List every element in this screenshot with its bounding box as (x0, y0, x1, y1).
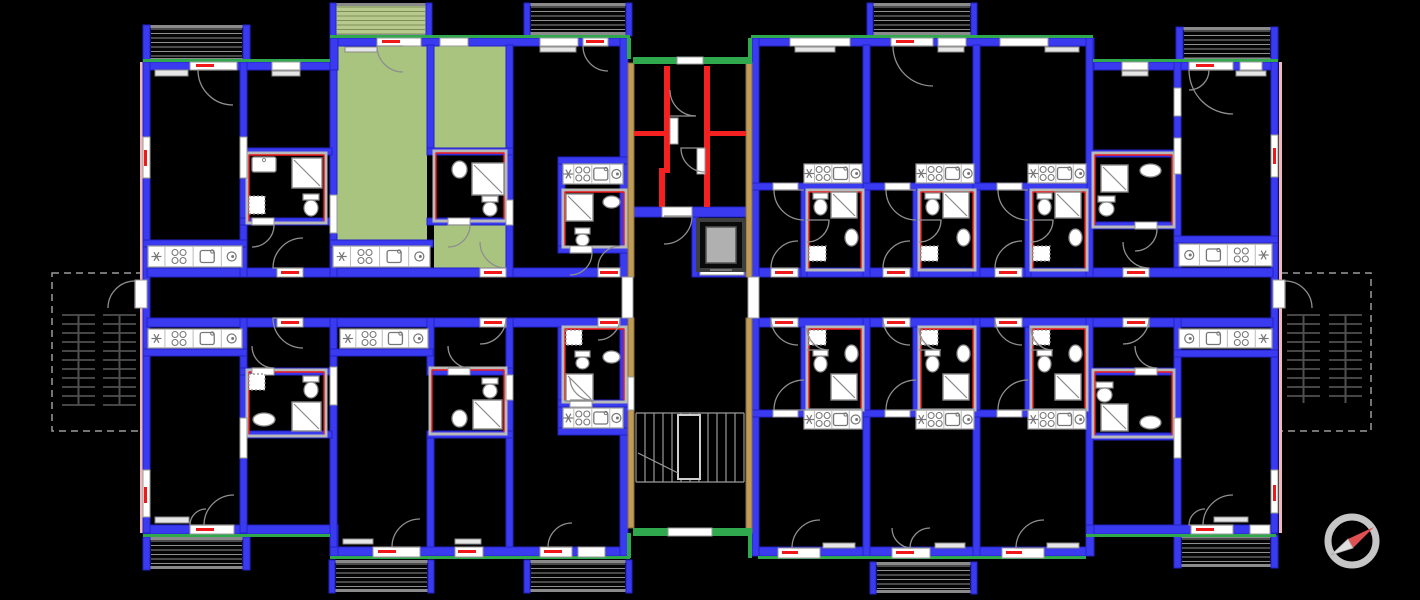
wall-tan (628, 318, 634, 528)
radiator-tick (999, 271, 1017, 274)
window-or-door-opening (448, 368, 470, 375)
window-sill (155, 70, 188, 76)
toilet-tank (925, 193, 940, 199)
wall-blue (626, 560, 632, 593)
washbasin (1069, 345, 1082, 362)
kitchen-counter (333, 246, 430, 267)
boiler-icon-dot (855, 172, 858, 175)
boiler-icon-dot (418, 337, 421, 340)
wall-red (634, 131, 664, 136)
window-sill (1122, 71, 1148, 76)
washbasin (1069, 229, 1082, 246)
window-sill (272, 71, 300, 76)
facade-line (748, 533, 752, 558)
boiler-icon-dot (1189, 337, 1192, 340)
kitchen-sink-icon (1058, 168, 1072, 180)
balcony (530, 560, 626, 592)
radiator-tick (281, 271, 299, 274)
toilet-tank (575, 228, 590, 234)
wall-blue (1271, 535, 1278, 568)
window-or-door-opening (540, 38, 578, 46)
radiator-tick (1196, 64, 1214, 67)
toilet-tank (1096, 382, 1113, 388)
window-or-door-opening (773, 410, 798, 417)
window-or-door-opening (1250, 525, 1270, 534)
washing-machine (1033, 246, 1050, 261)
toilet-bowl (483, 384, 497, 398)
stair-void (678, 415, 700, 479)
wall-blue (867, 3, 873, 36)
radiator-tick (1127, 271, 1145, 274)
radiator-tick (586, 40, 604, 43)
wall-blue (329, 560, 335, 593)
window-or-door-opening (578, 547, 605, 557)
window-sill (343, 539, 373, 544)
radiator-tick (281, 321, 299, 324)
balcony (873, 3, 971, 35)
elevator-car (706, 227, 736, 263)
radiator-tick (1127, 321, 1145, 324)
window-sill (1045, 47, 1079, 52)
radiator-tick (775, 271, 793, 274)
washing-machine (921, 246, 938, 261)
washing-machine (809, 330, 826, 345)
window-or-door-opening (668, 528, 712, 536)
toilet-bowl (1038, 199, 1051, 215)
radiator-tick (1273, 148, 1276, 164)
washbasin (452, 161, 467, 178)
wall-blue (243, 537, 250, 570)
window-or-door-opening (135, 280, 147, 308)
toilet-tank (813, 350, 828, 356)
wall-blue (330, 349, 433, 356)
balcony (335, 560, 428, 592)
wall-blue (143, 537, 150, 570)
radiator-tick (144, 487, 147, 503)
wall-blue (1174, 535, 1181, 568)
radiator-tick (896, 40, 914, 43)
washing-machine (921, 330, 938, 345)
wall-blue (428, 560, 434, 593)
window-or-door-opening (697, 148, 705, 174)
wall-blue (1174, 350, 1278, 357)
toilet-bowl (1038, 356, 1051, 372)
wall-blue (427, 45, 434, 151)
window-or-door-opening (570, 246, 592, 253)
balcony-rail (530, 3, 626, 6)
wall-tan (746, 63, 752, 277)
radiator-tick (484, 321, 502, 324)
wall-blue (626, 3, 632, 36)
window-or-door-opening (440, 38, 468, 46)
toilet-tank (1037, 193, 1052, 199)
window-or-door-opening (677, 57, 703, 64)
wall-red (659, 168, 665, 207)
toilet-bowl (1099, 202, 1114, 216)
toilet-bowl (576, 357, 589, 369)
window-or-door-opening (448, 218, 470, 225)
window-sill (1236, 71, 1266, 76)
window-or-door-opening (330, 195, 337, 233)
toilet-bowl (304, 382, 318, 398)
wall-blue (1176, 27, 1183, 60)
window-sill (795, 47, 835, 52)
radiator-tick (887, 271, 905, 274)
wall-blue (1086, 525, 1094, 556)
balcony-rail (150, 566, 243, 569)
radiator-tick (196, 528, 214, 531)
window-or-door-opening (240, 418, 247, 458)
toilet-tank (303, 194, 319, 200)
balcony-rail (530, 560, 626, 563)
balcony (150, 537, 243, 569)
window-or-door-opening (1273, 280, 1285, 308)
balcony (1181, 535, 1271, 567)
washing-machine (1033, 330, 1050, 345)
window-or-door-opening (1000, 38, 1048, 46)
toilet-tank (813, 193, 828, 199)
kitchen-sink-icon (594, 412, 608, 424)
boiler-icon-dot (967, 418, 970, 421)
window-or-door-opening (748, 277, 759, 318)
washbasin (957, 345, 970, 362)
wall-blue (243, 25, 250, 62)
radiator-tick (775, 321, 793, 324)
wall-blue (143, 25, 150, 62)
washbasin (1140, 164, 1161, 177)
toilet-bowl (814, 356, 827, 372)
radiator-tick (382, 40, 400, 43)
radiator-tick (600, 321, 618, 324)
window-or-door-opening (997, 183, 1022, 190)
balcony-rail (1183, 27, 1271, 30)
wall-blue (330, 38, 338, 70)
wall-blue (147, 318, 628, 327)
wall-red (704, 66, 710, 207)
kitchen-sink-icon (946, 168, 960, 180)
wall-blue (971, 3, 977, 36)
boiler-icon-dot (855, 418, 858, 421)
boiler-icon-dot (967, 172, 970, 175)
toilet-tank (1098, 196, 1115, 202)
washing-machine (249, 196, 265, 214)
kitchen-sink-icon (834, 414, 848, 426)
wall-blue (147, 268, 620, 277)
window-sill (935, 543, 965, 548)
wall-red (664, 66, 670, 168)
balcony-rail (873, 32, 971, 35)
wall-blue (1174, 236, 1278, 243)
boiler-icon-dot (1079, 172, 1082, 175)
washing-machine (249, 374, 265, 390)
wall-blue (524, 560, 530, 593)
window-or-door-opening (330, 367, 337, 405)
wall-blue (143, 349, 247, 356)
radiator-tick (1006, 551, 1022, 554)
boiler-icon-dot (616, 173, 619, 176)
room-green (434, 225, 506, 268)
kitchen-sink-icon (1206, 333, 1220, 345)
washbasin (1140, 416, 1161, 429)
balcony-rail (336, 3, 426, 6)
kitchen-sink-icon (388, 333, 402, 345)
washbasin (845, 345, 858, 362)
facade-line (143, 534, 330, 537)
wall-blue (426, 3, 432, 38)
window-or-door-opening (1135, 368, 1157, 375)
floor-plan-canvas (0, 0, 1420, 600)
room-green (337, 45, 427, 241)
washbasin (957, 229, 970, 246)
kitchen-counter (1179, 244, 1272, 266)
kitchen-counter (340, 329, 428, 348)
facade-line (1086, 534, 1276, 537)
radiator-tick (896, 551, 914, 554)
window-or-door-opening (997, 410, 1022, 417)
boiler-icon-dot (1189, 254, 1192, 257)
kitchen-sink-icon (834, 168, 848, 180)
window-or-door-opening (1240, 62, 1262, 70)
window-or-door-opening (240, 137, 247, 178)
wall-tan (746, 318, 752, 533)
window-or-door-opening (628, 377, 634, 410)
wall-tan (628, 63, 634, 277)
radiator-tick (458, 550, 476, 553)
balcony-rail (530, 32, 626, 35)
balcony-rail (150, 25, 243, 28)
boiler-icon-dot (231, 255, 234, 258)
radiator-tick (378, 550, 396, 553)
wall-blue (752, 318, 759, 556)
balcony-rail (335, 560, 428, 563)
wall-blue (558, 428, 628, 435)
window-sill (823, 543, 855, 548)
wall-blue (870, 562, 876, 594)
wall-blue (143, 525, 330, 534)
washbasin (452, 410, 467, 427)
kitchen-sink-icon (1058, 414, 1072, 426)
kitchen-sink-icon (946, 414, 960, 426)
apartment-building-floor-plan (0, 0, 1420, 600)
window-or-door-opening (790, 38, 850, 46)
window-or-door-opening (1135, 222, 1157, 229)
wall-blue (558, 157, 628, 164)
radiator-tick (144, 150, 147, 166)
toilet-bowl (483, 202, 497, 216)
washbasin (845, 229, 858, 246)
toilet-bowl (926, 199, 939, 215)
boiler-icon-dot (616, 417, 619, 420)
radiator-tick (1196, 528, 1214, 531)
toilet-bowl (814, 199, 827, 215)
washbasin (603, 196, 620, 208)
kitchen-sink-icon (387, 251, 401, 263)
balcony-rail (876, 590, 971, 593)
wall-red (659, 168, 670, 173)
balcony-rail (530, 589, 626, 592)
window-or-door-opening (272, 62, 300, 70)
kitchen-counter (148, 246, 242, 267)
window-sill (1047, 543, 1079, 548)
window-or-door-opening (938, 38, 966, 46)
balcony-rail (1181, 564, 1271, 567)
window-or-door-opening (622, 277, 633, 318)
washbasin (252, 157, 276, 172)
wall-red (710, 131, 746, 136)
wall-blue (330, 3, 336, 38)
window-sill (938, 47, 964, 52)
toilet-bowl (926, 356, 939, 372)
window-or-door-opening (1174, 418, 1181, 458)
toilet-tank (303, 376, 319, 382)
washbasin (603, 351, 620, 363)
radiator-tick (600, 271, 618, 274)
kitchen-counter (1179, 329, 1272, 348)
facade-line (748, 38, 752, 59)
wall-blue (1086, 525, 1276, 534)
toilet-bowl (304, 200, 318, 216)
window-sill (540, 47, 576, 52)
kitchen-sink-icon (200, 251, 214, 263)
balcony-rail (876, 562, 971, 565)
washing-machine (809, 246, 826, 261)
window-or-door-opening (885, 183, 910, 190)
wall-blue (1271, 27, 1278, 60)
window-or-door-opening (252, 218, 274, 225)
facade-line (627, 533, 631, 558)
wall-blue (524, 3, 530, 36)
radiator-tick (887, 321, 905, 324)
toilet-bowl (576, 234, 589, 246)
kitchen-sink-icon (594, 168, 608, 180)
kitchen-sink-icon (1206, 249, 1220, 261)
window-or-door-opening (1122, 62, 1148, 70)
radiator-tick (782, 551, 798, 554)
toilet-tank (1037, 350, 1052, 356)
washing-machine (566, 330, 582, 345)
kitchen-counter (148, 329, 242, 348)
boiler-icon-dot (1079, 418, 1082, 421)
boiler-icon-dot (231, 337, 234, 340)
wall-blue (752, 38, 759, 277)
window-sill (155, 517, 189, 523)
window-or-door-opening (773, 183, 798, 190)
toilet-tank (575, 351, 590, 357)
washbasin (253, 413, 275, 426)
window-sill (1214, 517, 1248, 522)
boiler-icon-dot (419, 255, 422, 258)
window-or-door-opening (506, 375, 513, 400)
window-or-door-opening (1174, 138, 1181, 174)
facade-line (627, 38, 631, 59)
toilet-bowl (1097, 388, 1112, 402)
wall-blue (427, 437, 434, 547)
radiator-tick (196, 64, 214, 67)
room-green (434, 45, 506, 148)
balcony-rail (873, 3, 971, 6)
toilet-tank (482, 378, 498, 384)
toilet-tank (925, 350, 940, 356)
window-or-door-opening (885, 410, 910, 417)
window-sill (455, 539, 481, 544)
kitchen-sink-icon (200, 333, 214, 345)
window-sill (345, 47, 377, 52)
toilet-tank (482, 196, 498, 202)
balcony (530, 3, 626, 35)
radiator-tick (999, 321, 1017, 324)
wall-blue (971, 562, 977, 594)
radiator-tick (484, 271, 502, 274)
radiator-tick (544, 550, 562, 553)
window-or-door-opening (670, 118, 678, 144)
balcony-rail (335, 589, 428, 592)
window-or-door-opening (506, 200, 513, 225)
window-or-door-opening (1174, 88, 1181, 116)
elevator (698, 220, 744, 270)
radiator-tick (1273, 485, 1276, 501)
balcony-rail (150, 537, 243, 540)
